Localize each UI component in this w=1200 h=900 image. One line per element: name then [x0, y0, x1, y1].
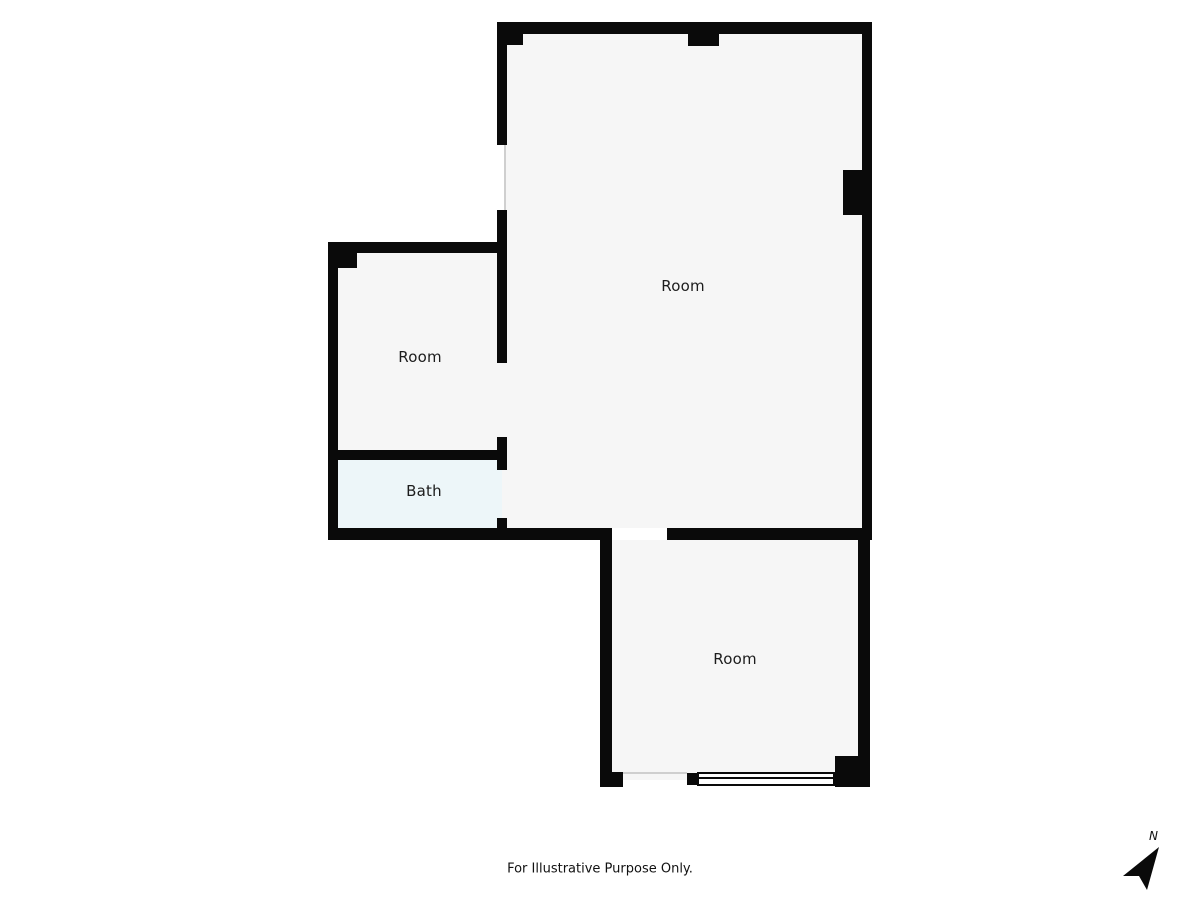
wall: [335, 450, 500, 460]
wall-corner: [835, 756, 870, 787]
disclaimer-text: For Illustrative Purpose Only.: [507, 862, 693, 877]
wall: [667, 528, 872, 540]
north-compass: N: [1118, 828, 1170, 894]
wall-pillar: [843, 170, 862, 215]
wall: [328, 528, 612, 540]
wall-corner: [600, 772, 623, 787]
wall: [328, 242, 500, 253]
wall: [858, 534, 870, 762]
window-mid-line: [699, 777, 833, 779]
wall-pillar: [338, 253, 357, 268]
door-opening: [612, 528, 667, 540]
wall: [328, 242, 338, 540]
room-left-label: Room: [398, 348, 442, 366]
wall-pillar: [688, 34, 719, 46]
wall: [497, 22, 507, 145]
north-arrow-icon: [1118, 840, 1164, 892]
wall: [497, 22, 872, 34]
bath-label: Bath: [406, 482, 442, 500]
opening-line: [623, 772, 687, 774]
room-large-label: Room: [661, 277, 705, 295]
wall: [497, 210, 507, 363]
wall: [862, 22, 872, 540]
window: [697, 772, 835, 786]
floorplan-canvas: Room Room Bath Room For Illustrative Pur…: [0, 0, 1200, 900]
wall: [687, 773, 697, 785]
window-line: [504, 145, 506, 210]
room-bottom-label: Room: [713, 650, 757, 668]
wall: [600, 532, 612, 787]
